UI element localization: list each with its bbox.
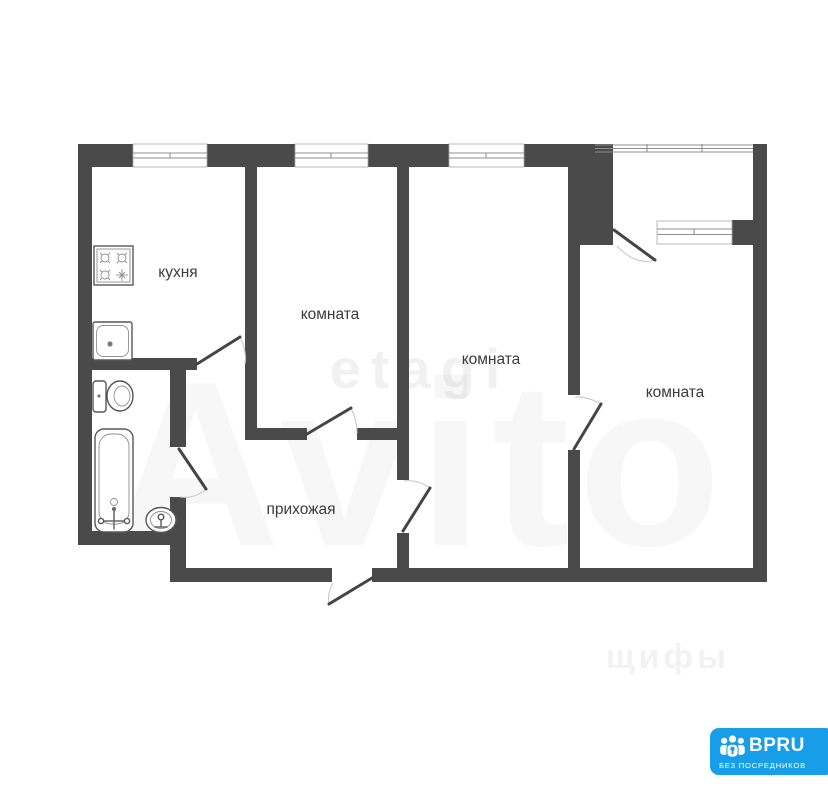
door-balcony <box>614 230 655 261</box>
window-kitchen <box>133 144 207 167</box>
floor-plan-svg: Avito etagi щифы <box>0 0 828 781</box>
badge-title: BPRU <box>749 736 805 755</box>
stove-icon <box>94 246 133 285</box>
room-label-room2: комната <box>462 351 521 368</box>
wall-room1-bottom-left <box>245 428 307 440</box>
balcony-glazing <box>595 144 753 152</box>
window-room2 <box>449 144 524 167</box>
room-label-room1: комната <box>301 306 360 323</box>
badge-top-row: BPRU <box>719 732 805 759</box>
toilet-icon <box>93 381 133 412</box>
washbasin-icon <box>146 508 176 533</box>
wall-kitchen-room1 <box>245 167 257 440</box>
badge-subtitle: БЕЗ ПОСРЕДНИКОВ <box>719 761 806 770</box>
wall-room2-room3-lower <box>568 450 580 582</box>
kitchen-sink-icon <box>93 322 132 360</box>
wall-balcony-left <box>580 144 613 245</box>
wall-bath-bottom <box>78 531 186 545</box>
floor-plan-page: { "plan": { "rooms": [ { "id": "kitchen"… <box>0 0 828 781</box>
bathtub-icon <box>95 429 133 532</box>
watermark-corner: щифы <box>606 638 730 676</box>
room-label-hallway: прихожая <box>266 501 335 518</box>
wall-left <box>78 144 92 545</box>
room-label-room3: комната <box>646 384 705 401</box>
wall-room2-room3-upper <box>568 167 580 395</box>
people-group-icon <box>719 733 746 759</box>
room-label-kitchen: кухня <box>158 264 197 281</box>
watermark-agency: etagi <box>330 337 511 400</box>
wall-bottom-left <box>170 568 332 582</box>
wall-balcony-right <box>732 220 753 245</box>
wall-right <box>753 144 767 582</box>
brand-badge: BPRU БЕЗ ПОСРЕДНИКОВ <box>710 728 828 775</box>
wall-room1-room2 <box>397 167 409 480</box>
window-room1 <box>295 144 368 167</box>
floor-plan: Avito etagi щифы <box>0 0 828 781</box>
window-balcony-room3 <box>657 221 732 244</box>
wall-hall-room2-lower <box>397 533 409 582</box>
wall-bath-right-upper <box>170 358 186 447</box>
